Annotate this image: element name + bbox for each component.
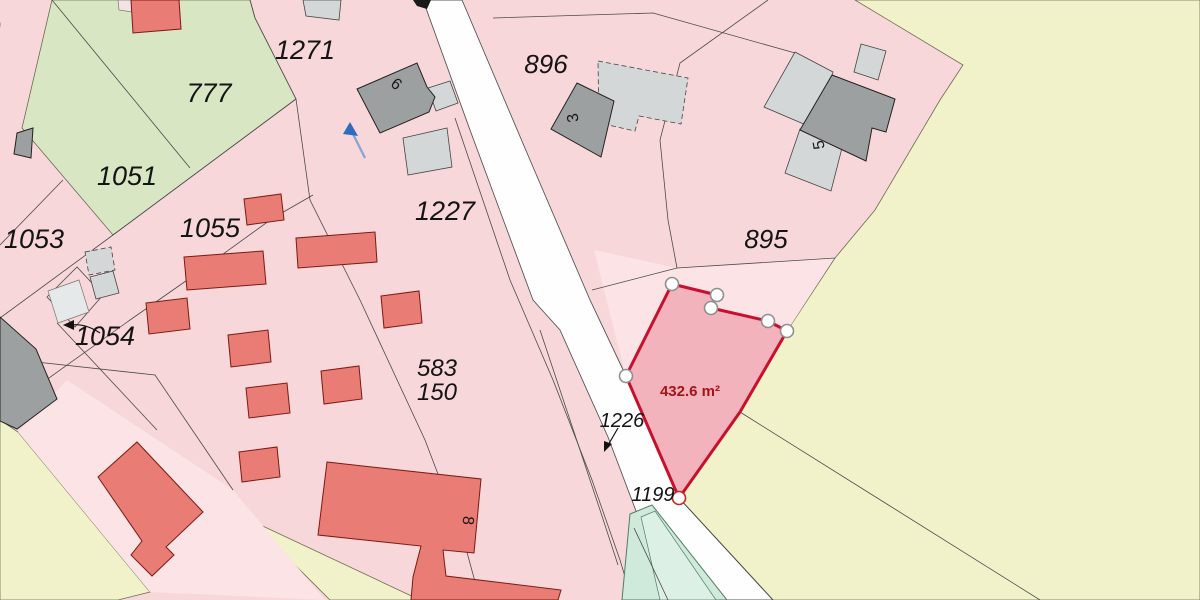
- building-red: [244, 194, 284, 225]
- parcel-label-150: 150: [417, 379, 458, 406]
- building-red: [228, 330, 271, 367]
- vertex-handle[interactable]: [705, 302, 718, 315]
- building-red: [146, 298, 190, 334]
- parcel-label-1054: 1054: [75, 321, 135, 351]
- building-red: [321, 366, 362, 404]
- building-annex-top: [118, 0, 132, 12]
- parcel-label-777: 777: [186, 78, 232, 108]
- building-red: [184, 251, 266, 290]
- building-red: [246, 383, 290, 418]
- vertex-handle[interactable]: [711, 289, 724, 302]
- vertex-handle[interactable]: [666, 278, 679, 291]
- vertex-handle[interactable]: [781, 325, 794, 338]
- parcel-label-1053: 1053: [4, 224, 64, 254]
- parcel-label-1271: 1271: [275, 35, 335, 65]
- building-red: [381, 291, 422, 328]
- building-shed-dashed: [85, 247, 115, 275]
- vertex-handle[interactable]: [762, 315, 775, 328]
- parcel-label-1199: 1199: [631, 484, 674, 506]
- parcel-label-896: 896: [524, 49, 568, 79]
- parcel-label-1226: 1226: [600, 410, 645, 432]
- building-red: [239, 447, 280, 482]
- parcel-label-895: 895: [744, 224, 788, 254]
- building-red-top: [131, 0, 181, 33]
- cadastral-map: 0777127189610511053105510541227895583150…: [0, 0, 1200, 600]
- map-canvas[interactable]: 0777127189610511053105510541227895583150…: [0, 0, 1200, 600]
- building-label-8: 8: [459, 515, 477, 525]
- parcel-label-1055: 1055: [180, 213, 241, 243]
- parcel-label-1051: 1051: [97, 161, 157, 191]
- parcel-label-583: 583: [417, 355, 458, 382]
- parcel-label-0: 0: [0, 13, 1, 43]
- area-measurement: 432.6 m²: [660, 383, 720, 400]
- building-red: [296, 232, 377, 268]
- parcel-label-1227: 1227: [415, 196, 476, 226]
- vertex-handle[interactable]: [620, 370, 633, 383]
